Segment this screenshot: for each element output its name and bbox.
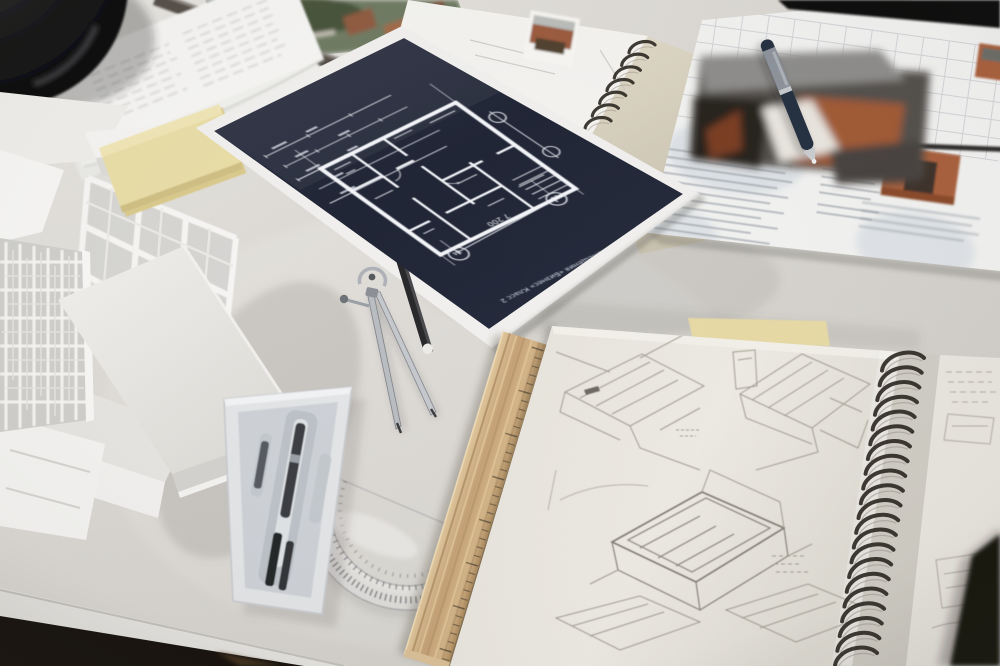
vignette [0, 0, 1000, 666]
scene-canvas: 14 13 7 200 Тип помещения «Бизнес» Класс… [0, 0, 1000, 666]
photo-architect-desk: 14 13 7 200 Тип помещения «Бизнес» Класс… [0, 0, 1000, 666]
